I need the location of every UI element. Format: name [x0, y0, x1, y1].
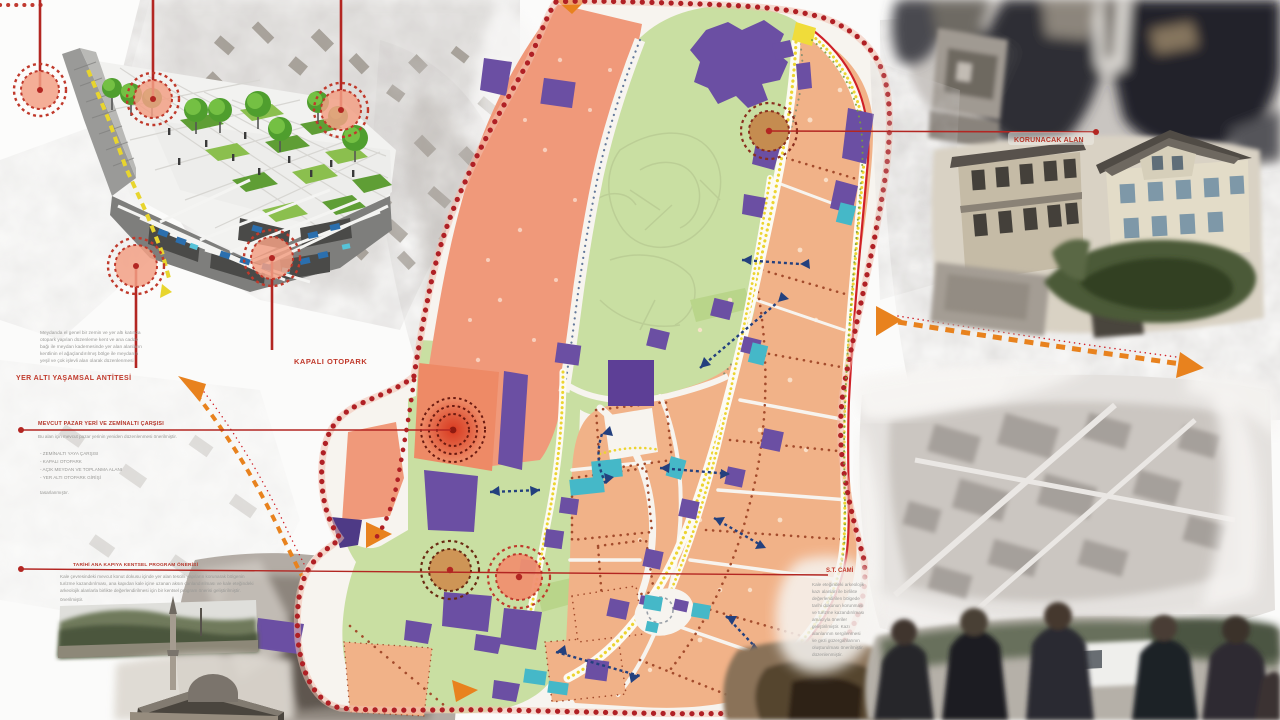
- svg-text:yeşil ve çok işlevli alan olar: yeşil ve çok işlevli alan olarak düzenle…: [40, 358, 134, 364]
- svg-text:önerilmiştir.: önerilmiştir.: [60, 597, 83, 602]
- svg-text:bağı ile meydan kademesinde ye: bağı ile meydan kademesinde yer alan ala…: [40, 344, 142, 350]
- svg-text:kentlinin el ağaçlandırılmış b: kentlinin el ağaçlandırılmış bölge ile m…: [40, 351, 138, 357]
- svg-text:kazı alanları ile birlikte: kazı alanları ile birlikte: [812, 589, 858, 594]
- svg-text:tasarlanmıştır.: tasarlanmıştır.: [40, 490, 69, 495]
- svg-text:Kale eteğindeki arkeolojik: Kale eteğindeki arkeolojik: [812, 582, 865, 587]
- svg-text:ve gezi güzergahlarının: ve gezi güzergahlarının: [812, 638, 860, 643]
- svg-text:otopark yapılan düzenleme kent: otopark yapılan düzenleme kent ve ana ca…: [40, 337, 138, 343]
- svg-text:MEVCUT PAZAR YERİ VE ZEMİNALTI: MEVCUT PAZAR YERİ VE ZEMİNALTI ÇARŞISI: [38, 420, 164, 427]
- svg-text:S.T. CAMİ: S.T. CAMİ: [826, 567, 854, 574]
- svg-text:turizme kazandırılması, ana ka: turizme kazandırılması, ana kapıdan kale…: [60, 581, 254, 586]
- svg-text:tarihi dokunun korunması: tarihi dokunun korunması: [812, 603, 864, 608]
- svg-text:- AÇIK MEYDAN VE TOPLANMA ALAN: - AÇIK MEYDAN VE TOPLANMA ALANI: [40, 467, 122, 472]
- svg-text:amacıyla öneriler: amacıyla öneriler: [812, 617, 847, 622]
- svg-text:değerlendirilen bölgede: değerlendirilen bölgede: [812, 596, 860, 601]
- svg-text:TARİHİ ANA KAPIYA KENTSEL PROG: TARİHİ ANA KAPIYA KENTSEL PROGRAM ÖNERİS…: [73, 561, 199, 568]
- svg-text:Meydanda el genel bir zemin ve: Meydanda el genel bir zemin ve yer altı …: [40, 330, 141, 336]
- svg-text:KORUNACAK ALAN: KORUNACAK ALAN: [1014, 137, 1084, 144]
- svg-text:- ZEMİNALTI YAYA ÇARŞISI: - ZEMİNALTI YAYA ÇARŞISI: [40, 450, 98, 456]
- svg-text:alanlarının sergilenmesi: alanlarının sergilenmesi: [812, 631, 861, 636]
- svg-text:düzenlenmiştir.: düzenlenmiştir.: [812, 652, 843, 657]
- svg-text:- YER ALTI OTOPARK GİRİŞİ: - YER ALTI OTOPARK GİRİŞİ: [40, 474, 101, 480]
- svg-text:- KAPALI OTOPARK: - KAPALI OTOPARK: [40, 459, 83, 464]
- svg-text:YER ALTI YAŞAMSAL ANTİTESİ: YER ALTI YAŞAMSAL ANTİTESİ: [16, 374, 131, 382]
- svg-text:ve turizme kazandırılması: ve turizme kazandırılması: [812, 610, 864, 615]
- svg-text:oluşturulması önerilmiştir.: oluşturulması önerilmiştir.: [812, 645, 864, 650]
- svg-text:Kale çevresindeki mevcut konut: Kale çevresindeki mevcut konut dokusu iç…: [60, 574, 245, 579]
- svg-text:geliştirilmiştir. Kazı: geliştirilmiştir. Kazı: [812, 624, 850, 629]
- svg-text:arkeolojik alanlarla birlikte: arkeolojik alanlarla birlikte değerlendi…: [60, 588, 241, 593]
- svg-text:KAPALI OTOPARK: KAPALI OTOPARK: [294, 357, 367, 366]
- svg-text:Bu alan için mevcut pazar yeri: Bu alan için mevcut pazar yerinin yenide…: [38, 434, 177, 439]
